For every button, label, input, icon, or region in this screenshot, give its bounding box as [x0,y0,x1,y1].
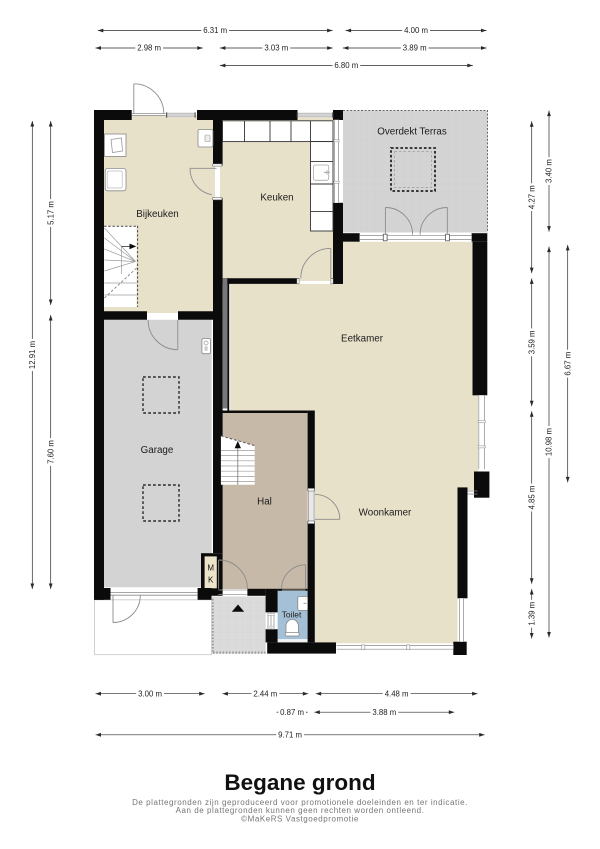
svg-text:M: M [207,564,214,573]
svg-text:Toilet: Toilet [282,610,302,620]
svg-text:4.00 m: 4.00 m [404,26,428,35]
svg-text:2.44 m: 2.44 m [253,689,277,698]
svg-text:1.39 m: 1.39 m [527,602,536,626]
svg-text:Bijkeuken: Bijkeuken [136,209,178,220]
svg-text:5.17 m: 5.17 m [46,201,55,225]
svg-text:0.87 m: 0.87 m [280,708,304,717]
svg-text:Garage: Garage [141,445,174,456]
svg-text:6.31 m: 6.31 m [203,26,227,35]
svg-text:9.71 m: 9.71 m [278,730,302,739]
svg-text:Begane grond: Begane grond [224,770,375,795]
svg-text:Overdekt Terras: Overdekt Terras [377,126,447,137]
svg-text:4.27 m: 4.27 m [527,185,536,209]
svg-text:3.59 m: 3.59 m [527,330,536,354]
svg-text:6.67 m: 6.67 m [563,352,572,376]
svg-text:7.60 m: 7.60 m [46,440,55,464]
svg-text:3.00 m: 3.00 m [138,689,162,698]
svg-text:3.89 m: 3.89 m [403,44,427,53]
svg-text:©MaKeRS Vastgoedpromotie: ©MaKeRS Vastgoedpromotie [241,814,359,823]
svg-text:Eetkamer: Eetkamer [341,334,384,345]
svg-text:10.98 m: 10.98 m [545,428,554,456]
svg-text:6.80 m: 6.80 m [334,61,358,70]
svg-text:3.88 m: 3.88 m [372,708,396,717]
svg-text:Woonkamer: Woonkamer [359,508,412,519]
svg-text:2.98 m: 2.98 m [137,44,161,53]
svg-text:Keuken: Keuken [260,193,293,204]
svg-text:3.03 m: 3.03 m [264,44,288,53]
svg-text:Hal: Hal [257,497,272,508]
svg-text:4.85 m: 4.85 m [527,486,536,510]
svg-text:3.40 m: 3.40 m [545,159,554,183]
svg-text:12.91 m: 12.91 m [28,341,37,369]
svg-text:4.48 m: 4.48 m [385,689,409,698]
svg-text:K: K [208,576,214,585]
